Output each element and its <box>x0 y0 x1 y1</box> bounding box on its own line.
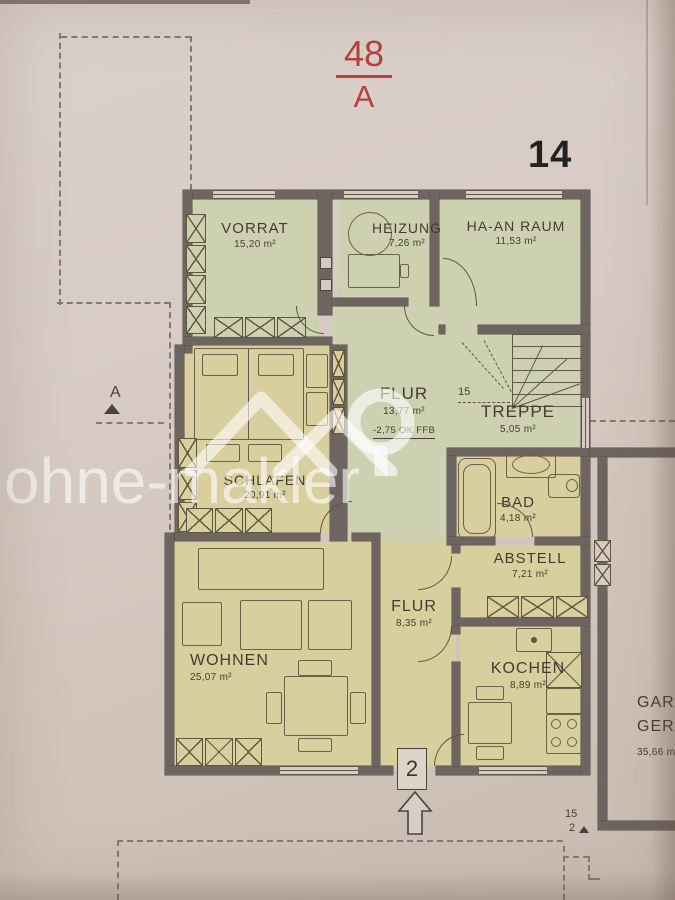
door-frame-mark <box>320 279 332 291</box>
window <box>280 766 358 775</box>
pillow <box>202 354 238 376</box>
wall-segment-garage <box>598 457 607 829</box>
equipment-desk <box>348 254 400 288</box>
room-label-flur-unten: FLUR 8,35 m² <box>382 598 446 630</box>
window <box>344 190 418 199</box>
chair <box>476 746 504 760</box>
kitchen-table <box>468 702 512 744</box>
section-cut-line <box>96 422 164 424</box>
burner <box>567 719 577 729</box>
chair <box>298 660 332 676</box>
boundary-line <box>563 846 565 900</box>
boundary-line <box>117 840 119 900</box>
wall-segment <box>452 626 460 634</box>
section-marker-label: A <box>110 384 121 402</box>
wall-segment <box>535 537 590 545</box>
hatch-box <box>186 275 206 304</box>
chair <box>298 738 332 752</box>
section-marker-triangle <box>104 404 120 414</box>
window <box>213 190 275 199</box>
plan-code: 48 A <box>333 36 395 112</box>
room-label-treppe: TREPPE 5,05 m² <box>478 402 558 435</box>
hatch-box <box>214 317 243 338</box>
burner <box>567 737 577 747</box>
wall-segment <box>372 541 380 766</box>
section-cut-line <box>590 420 675 422</box>
wall-segment <box>183 337 332 345</box>
closet-hatch-row <box>214 317 306 338</box>
plan-code-denominator: A <box>333 81 395 112</box>
kitchen-counter <box>546 688 582 714</box>
room-label-wohnen: WOHNEN 25,07 m² <box>184 652 276 684</box>
wall-segment <box>318 190 332 315</box>
plan-code-divider <box>336 75 392 78</box>
room-label-kochen: KOCHEN 8,89 m² <box>486 660 570 692</box>
entrance-arrow-icon <box>396 790 434 836</box>
wall-segment <box>581 190 590 775</box>
window <box>479 766 547 775</box>
closet-hatch-row <box>176 738 262 766</box>
boundary-line <box>588 878 600 880</box>
wall-segment <box>452 588 460 618</box>
boundary-dimension: 15 <box>565 808 577 820</box>
wall-segment <box>175 533 320 541</box>
sofa <box>198 548 324 590</box>
wall-segment <box>478 325 590 334</box>
closet-hatch-row <box>487 596 588 618</box>
floor-plan-photo: 48 A 14 15 2 A <box>0 0 675 900</box>
photo-edge-shadow <box>0 872 675 900</box>
coffee-table <box>240 600 302 650</box>
boundary-line <box>117 840 563 842</box>
entrance-number-box: 2 <box>397 748 427 790</box>
boundary-line <box>588 856 590 880</box>
plan-code-numerator: 48 <box>333 36 395 72</box>
boundary-dimension: 2 <box>569 822 575 834</box>
door-frame-mark <box>320 257 332 269</box>
wall-segment-garage <box>590 448 675 457</box>
hatch-box <box>556 596 588 618</box>
hatch-box <box>245 317 274 338</box>
hatch-box <box>205 738 232 766</box>
paper-crease <box>646 0 648 205</box>
sheet-number: 14 <box>528 134 572 177</box>
hatch-box <box>521 596 553 618</box>
boundary-line <box>61 36 191 38</box>
window-hatch-column <box>594 540 611 586</box>
wall-segment <box>439 325 445 334</box>
boundary-triangle-marker <box>579 826 589 833</box>
hatch-box <box>487 596 519 618</box>
wall-segment <box>352 533 380 541</box>
boundary-line <box>190 36 192 190</box>
room-label-garage: GAR GER 35,66 m <box>637 694 675 758</box>
room-label-heizung: HEIZUNG 7,26 m² <box>362 220 452 250</box>
wall-segment <box>332 298 408 306</box>
wall-segment <box>452 618 590 626</box>
window <box>466 190 562 199</box>
pillow <box>258 354 294 376</box>
dining-table <box>284 676 348 736</box>
chair <box>350 692 366 724</box>
room-label-vorrat: VORRAT 15,20 m² <box>200 220 310 251</box>
armchair <box>182 602 222 646</box>
room-label-abstell: ABSTELL 7,21 m² <box>482 550 578 581</box>
chair <box>266 692 282 724</box>
room-label-ha-an-raum: HA-AN RAUM 11,53 m² <box>455 218 577 248</box>
stair-step-count: 15 <box>458 386 470 398</box>
toilet-bowl <box>566 479 578 492</box>
hatch-box <box>235 738 262 766</box>
armchair <box>308 600 352 650</box>
hatch-box <box>594 564 611 586</box>
boundary-line <box>57 302 170 304</box>
equipment-knob <box>400 264 409 278</box>
photo-edge-shadow <box>0 0 250 4</box>
boundary-line <box>563 856 589 858</box>
boundary-line <box>59 33 61 305</box>
wall-segment-garage <box>598 821 675 830</box>
burner <box>551 737 561 747</box>
hatch-box <box>594 540 611 562</box>
watermark-text: ohne-makler <box>4 444 564 518</box>
hatch-box <box>332 350 345 377</box>
burner <box>551 719 561 729</box>
appliance-dot <box>531 637 537 643</box>
wall-segment <box>165 533 174 775</box>
hatch-box <box>176 738 203 766</box>
hatch-box <box>186 306 206 335</box>
wall-segment <box>165 766 393 775</box>
wall-segment <box>452 545 460 553</box>
